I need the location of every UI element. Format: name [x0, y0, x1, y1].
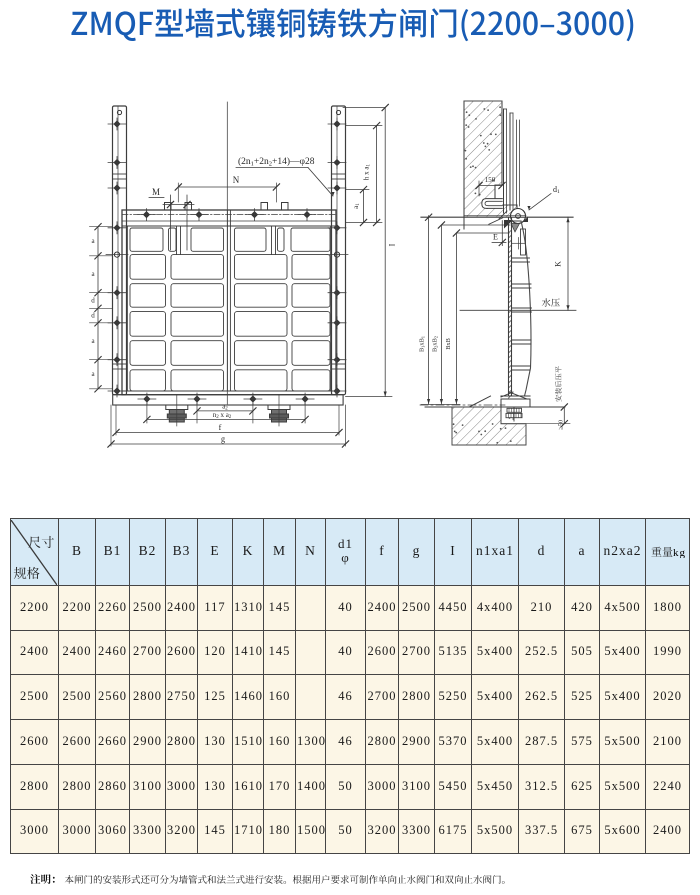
svg-text:I: I [388, 243, 397, 246]
svg-text:n2 x a2: n2 x a2 [213, 411, 232, 420]
svg-text:B2xB2: B2xB2 [432, 336, 439, 352]
svg-text:B1xB1: B1xB1 [419, 336, 426, 352]
svg-text:kg: kg [673, 547, 685, 558]
svg-text:d: d [91, 312, 95, 320]
svg-text:N: N [233, 175, 240, 185]
svg-text:BxB: BxB [445, 338, 452, 350]
svg-text:d: d [91, 297, 95, 305]
svg-text:M: M [152, 187, 160, 197]
svg-text:f: f [219, 423, 222, 432]
svg-text:E: E [493, 233, 498, 242]
svg-text:a: a [91, 370, 95, 378]
svg-text:g: g [221, 435, 225, 444]
svg-text:150: 150 [485, 176, 496, 184]
svg-text:a: a [91, 270, 95, 278]
svg-text:a1: a1 [352, 203, 361, 209]
svg-text:h x a1: h x a1 [363, 163, 372, 180]
svg-text:a: a [91, 337, 95, 345]
svg-text:K: K [554, 261, 563, 267]
svg-text:≥50: ≥50 [558, 420, 565, 430]
svg-text:(2n1+2n2+14)—φ28: (2n1+2n2+14)—φ28 [238, 156, 315, 168]
svg-text:d1: d1 [553, 185, 560, 195]
svg-text:a: a [91, 237, 95, 245]
